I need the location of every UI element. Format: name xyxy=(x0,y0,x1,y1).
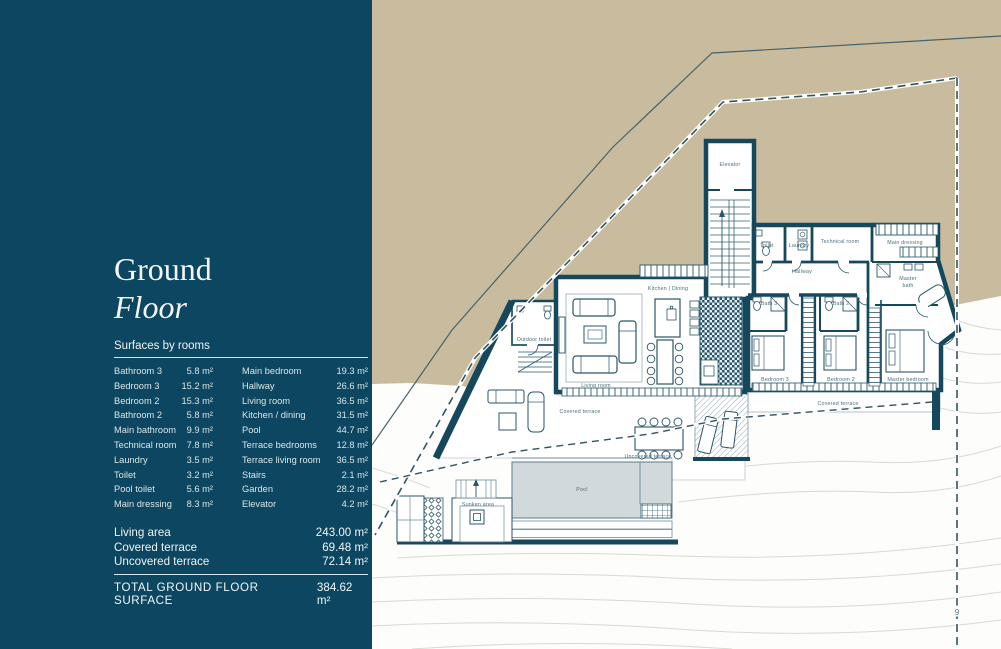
room-row: Bathroom 35.8 m² xyxy=(114,364,213,379)
room-row: Bedroom 315.2 m² xyxy=(114,379,213,394)
label-elevator: Elevator xyxy=(719,162,740,168)
label-covered-terrace-left: Covered terrace xyxy=(560,409,601,415)
label-living-room: Living room xyxy=(581,383,611,389)
room-area: 44.7 m² xyxy=(336,423,368,438)
label-master-bedroom: Master bedroom xyxy=(887,377,929,383)
label-toilet: Toilet xyxy=(760,243,774,249)
room-area: 31.5 m² xyxy=(336,408,368,423)
room-name: Terrace living room xyxy=(242,453,321,468)
room-name: Hallway xyxy=(242,379,275,394)
room-area: 7.8 m² xyxy=(187,438,213,453)
bedroom-glazing-band xyxy=(752,383,936,391)
summary-row: Living area243.00 m² xyxy=(114,526,368,541)
room-name: Pool xyxy=(242,423,261,438)
room-name: Stairs xyxy=(242,468,266,483)
label-bath3: Bath 3 xyxy=(761,301,778,307)
label-kitchen-dining: Kitchen | Dining xyxy=(648,286,688,292)
room-surface-table: Bathroom 35.8 m² Bedroom 315.2 m² Bedroo… xyxy=(114,364,368,512)
room-name: Laundry xyxy=(114,453,148,468)
surfaces-section-label: Surfaces by rooms xyxy=(114,340,210,352)
room-row: Bedroom 215.3 m² xyxy=(114,394,213,409)
summary-value: 243.00 m² xyxy=(316,526,368,541)
summary-label: Living area xyxy=(114,526,171,541)
room-area: 28.2 m² xyxy=(336,482,368,497)
room-row: Toilet3.2 m² xyxy=(114,468,213,483)
boundary-marker-9: 9 xyxy=(955,608,960,617)
room-name: Living room xyxy=(242,394,290,409)
room-row: Technical room7.8 m² xyxy=(114,438,213,453)
garden-bed xyxy=(424,498,443,542)
floor-plan: Elevator Toilet Laundry Technical room M… xyxy=(372,0,1001,649)
pool-steps xyxy=(641,504,671,518)
bedroom-furniture xyxy=(752,330,924,372)
room-area: 15.3 m² xyxy=(181,394,213,409)
label-master-bath: Master xyxy=(899,276,916,282)
room-row: Pool44.7 m² xyxy=(242,423,368,438)
fire-pit xyxy=(470,510,484,524)
dressing-window-band xyxy=(876,224,938,235)
pool-area xyxy=(397,458,678,542)
room-area: 3.2 m² xyxy=(187,468,213,483)
room-area: 19.3 m² xyxy=(336,364,368,379)
room-name: Elevator xyxy=(242,497,276,512)
room-row: Pool toilet5.6 m² xyxy=(114,482,213,497)
surface-summary: Living area243.00 m² Covered terrace69.4… xyxy=(114,526,368,570)
label-bedroom2: Bedroom 2 xyxy=(827,377,855,383)
room-name: Technical room xyxy=(114,438,177,453)
closet-column xyxy=(803,298,814,386)
site-plan: Elevator Toilet Laundry Technical room M… xyxy=(372,0,1001,649)
label-hallway: Hallway xyxy=(792,269,812,275)
room-name: Kitchen / dining xyxy=(242,408,306,423)
sofa xyxy=(573,356,617,373)
summary-value: 69.48 m² xyxy=(322,541,368,556)
room-area: 26.6 m² xyxy=(336,379,368,394)
room-row: Main bedroom19.3 m² xyxy=(242,364,368,379)
sofa xyxy=(573,299,615,316)
page-title-line1: Ground xyxy=(114,251,212,287)
room-area: 5.6 m² xyxy=(187,482,213,497)
living-glazing-band xyxy=(562,388,742,396)
room-name: Bedroom 3 xyxy=(114,379,159,394)
kitchen-window-band xyxy=(640,265,708,277)
room-area: 5.8 m² xyxy=(187,408,213,423)
room-name: Bathroom 3 xyxy=(114,364,162,379)
page-title-line2: Floor xyxy=(114,288,212,326)
wardrobe-band xyxy=(900,247,938,257)
room-row: Laundry3.5 m² xyxy=(114,453,213,468)
label-outdoor-toilet: Outdoor toilet xyxy=(517,337,552,343)
summary-label: Covered terrace xyxy=(114,541,197,556)
room-name: Terrace bedrooms xyxy=(242,438,317,453)
chaise xyxy=(619,321,636,363)
divider-line xyxy=(114,357,368,358)
room-table-column-1: Bathroom 35.8 m² Bedroom 315.2 m² Bedroo… xyxy=(114,364,213,512)
label-sunken-area: Sunken area xyxy=(462,502,494,508)
room-area: 4.2 m² xyxy=(342,497,368,512)
room-row: Stairs2.1 m² xyxy=(242,468,368,483)
label-covered-terrace: Covered terrace xyxy=(818,401,859,407)
room-name: Garden xyxy=(242,482,273,497)
label-master-bath: bath xyxy=(902,283,913,289)
total-label: TOTAL GROUND FLOOR SURFACE xyxy=(114,581,317,607)
room-area: 12.8 m² xyxy=(336,438,368,453)
room-name: Main dressing xyxy=(114,497,172,512)
room-row: Kitchen / dining31.5 m² xyxy=(242,408,368,423)
terrace-end-wall xyxy=(932,392,940,430)
room-name: Main bedroom xyxy=(242,364,301,379)
room-area: 8.3 m² xyxy=(187,497,213,512)
total-surface-row: TOTAL GROUND FLOOR SURFACE 384.62 m² xyxy=(114,581,368,607)
room-row: Living room36.5 m² xyxy=(242,394,368,409)
room-area: 36.5 m² xyxy=(336,453,368,468)
room-row: Garden28.2 m² xyxy=(242,482,368,497)
label-main-dressing: Main dressing xyxy=(887,240,923,246)
room-area: 9.9 m² xyxy=(187,423,213,438)
room-row: Main bathroom9.9 m² xyxy=(114,423,213,438)
room-table-column-2: Main bedroom19.3 m² Hallway26.6 m² Livin… xyxy=(242,364,368,512)
room-area: 2.1 m² xyxy=(342,468,368,483)
sunken-area xyxy=(452,479,512,542)
closet-column xyxy=(869,308,880,386)
label-bedroom3: Bedroom 3 xyxy=(761,377,789,383)
summary-row: Covered terrace69.48 m² xyxy=(114,541,368,556)
room-area: 5.8 m² xyxy=(187,364,213,379)
summary-row: Uncovered terrace72.14 m² xyxy=(114,555,368,570)
page-title: Ground Floor xyxy=(114,250,212,326)
tv-unit xyxy=(559,317,565,353)
room-area: 15.2 m² xyxy=(181,379,213,394)
kitchen-sink xyxy=(667,309,676,320)
stair-void-hatch xyxy=(700,297,742,385)
room-name: Bathroom 2 xyxy=(114,408,162,423)
summary-label: Uncovered terrace xyxy=(114,555,209,570)
info-panel: Ground Floor Surfaces by rooms Bathroom … xyxy=(0,0,372,649)
room-name: Main bathroom xyxy=(114,423,176,438)
room-row: Terrace bedrooms12.8 m² xyxy=(242,438,368,453)
room-row: Hallway26.6 m² xyxy=(242,379,368,394)
side-structure xyxy=(397,496,424,542)
dining-table xyxy=(657,340,673,384)
label-bath2: Bath 2 xyxy=(833,301,850,307)
room-row: Elevator4.2 m² xyxy=(242,497,368,512)
room-name: Toilet xyxy=(114,468,136,483)
room-row: Bathroom 25.8 m² xyxy=(114,408,213,423)
label-laundry: Laundry xyxy=(789,243,810,249)
room-area: 36.5 m² xyxy=(336,394,368,409)
room-row: Main dressing8.3 m² xyxy=(114,497,213,512)
room-name: Bedroom 2 xyxy=(114,394,159,409)
brochure-page: Ground Floor Surfaces by rooms Bathroom … xyxy=(0,0,1001,649)
summary-value: 72.14 m² xyxy=(322,555,368,570)
room-name: Pool toilet xyxy=(114,482,155,497)
divider-line xyxy=(114,574,368,575)
room-area: 3.5 m² xyxy=(187,453,213,468)
room-row: Terrace living room36.5 m² xyxy=(242,453,368,468)
label-pool: Pool xyxy=(576,487,587,493)
label-technical-room: Technical room xyxy=(821,239,860,245)
label-uncovered-terrace: Uncovered terrace xyxy=(625,454,672,460)
total-value: 384.62 m² xyxy=(317,581,368,607)
